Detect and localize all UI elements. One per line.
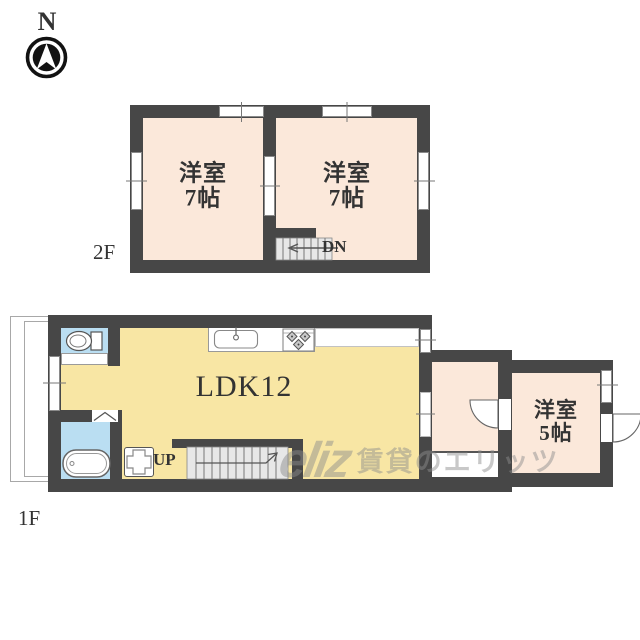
wall [130,105,430,118]
kitchen-counter-extension [315,328,419,347]
floor-label-1f: 1F [18,506,40,531]
room-name: 洋室 [323,161,371,186]
wall [498,360,613,373]
wall [108,328,120,366]
kitchen-counter [208,325,315,352]
wall [292,439,303,492]
window [418,152,429,210]
window [49,356,60,411]
door-swing-icon [613,414,640,442]
wall [498,473,613,487]
window [420,329,431,353]
room-name: 洋室 [534,399,578,422]
door-opening-hall-5jo [499,399,511,430]
room-label-5jo: 洋室 5帖 [534,399,578,445]
sliding-door-2f [264,156,275,216]
room-label-2f-right: 洋室 7帖 [323,161,371,212]
wall [48,315,432,328]
window [131,152,142,210]
room-fill-bathroom [61,422,110,479]
wall [276,228,316,238]
sliding-door-ldk-hall [420,392,431,437]
room-fill-toilet [61,328,108,353]
room-size: 7帖 [323,186,371,211]
washer-pan [124,447,154,477]
wall [110,410,122,492]
wall [172,439,292,448]
room-label-ldk: LDK12 [196,370,293,404]
wall [130,260,430,273]
stairs-dn-label: DN [322,237,347,257]
floor-label-2f: 2F [93,240,115,265]
floor-plan-image: N 2F 洋室 7帖 洋室 7帖 DN LDK12 UP 洋室 5帖 1F el… [0,0,640,640]
room-size: 5帖 [534,422,578,445]
north-compass-icon [28,39,66,77]
window [322,106,372,117]
genkan-floor [432,451,498,479]
room-name: 洋室 [179,161,227,186]
wall [48,479,432,492]
window [601,370,612,403]
compass-north-label: N [38,7,57,37]
door-opening-entrance [601,414,612,442]
room-label-2f-left: 洋室 7帖 [179,161,227,212]
stairs-up-label: UP [153,450,176,470]
window [219,106,264,117]
toilet-door [61,353,108,365]
room-size: 7帖 [179,186,227,211]
